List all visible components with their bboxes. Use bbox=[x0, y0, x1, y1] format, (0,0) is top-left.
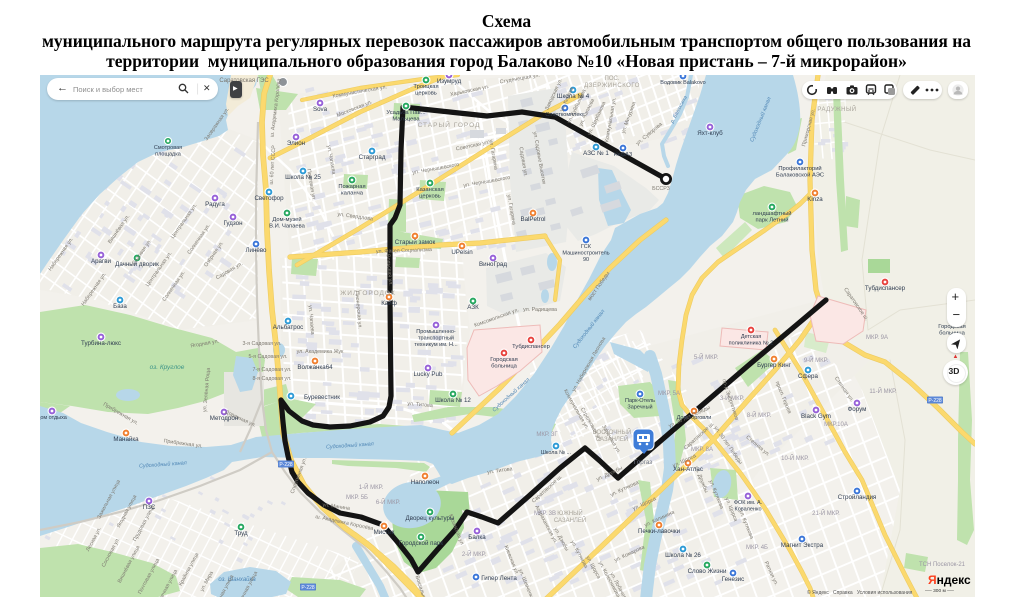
svg-text:ЖИЛГОРОДОК: ЖИЛГОРОДОК bbox=[340, 290, 396, 297]
svg-text:Парк-Отель: Парк-Отель bbox=[625, 398, 655, 404]
svg-text:ФОК им. А.: ФОК им. А. bbox=[734, 500, 763, 506]
svg-text:Хан-Атлас: Хан-Атлас bbox=[673, 466, 703, 473]
svg-text:РАДУЖНЫЙ: РАДУЖНЫЙ bbox=[817, 105, 856, 113]
svg-text:Дом торговли: Дом торговли bbox=[677, 415, 712, 421]
svg-text:Детская: Детская bbox=[741, 334, 761, 340]
svg-text:Усадьба Пав...: Усадьба Пав... bbox=[386, 110, 426, 116]
svg-text:Тубдиспансер: Тубдиспансер bbox=[512, 344, 550, 350]
svg-text:Заречный: Заречный bbox=[627, 404, 652, 411]
svg-text:АЗК: АЗК bbox=[467, 304, 479, 311]
svg-text:90: 90 bbox=[583, 257, 589, 263]
svg-text:Старый замок: Старый замок bbox=[395, 239, 436, 246]
svg-text:Горгаз: Горгаз bbox=[634, 459, 652, 466]
svg-text:Гипер Лента: Гипер Лента bbox=[481, 575, 517, 582]
svg-text:Манайка: Манайка bbox=[113, 436, 139, 443]
svg-text:МКР. 9А: МКР. 9А bbox=[866, 335, 888, 341]
svg-text:парк Летний: парк Летний bbox=[756, 217, 789, 224]
svg-text:Black Gym: Black Gym bbox=[801, 413, 831, 420]
svg-text:Городской парк: Городской парк bbox=[399, 540, 443, 547]
svg-text:оз. Круглое: оз. Круглое bbox=[150, 364, 185, 371]
svg-text:UPelsin: UPelsin bbox=[451, 249, 473, 256]
svg-text:Кайф: Кайф bbox=[381, 300, 397, 307]
svg-text:больница: больница bbox=[491, 364, 518, 370]
svg-text:Смотровая: Смотровая bbox=[154, 145, 182, 151]
svg-text:Дворец культуры: Дворец культуры bbox=[406, 515, 455, 522]
svg-text:Школа № 4: Школа № 4 bbox=[557, 93, 590, 100]
svg-text:Машиностроитель: Машиностроитель bbox=[562, 251, 609, 257]
svg-text:База: База bbox=[113, 303, 127, 310]
svg-text:Водовик Balakovo: Водовик Balakovo bbox=[660, 80, 705, 86]
svg-text:В.И. Чапаева: В.И. Чапаева bbox=[269, 224, 306, 230]
svg-text:5-я Садовая ул.: 5-я Садовая ул. bbox=[248, 354, 287, 360]
svg-text:8-я Садовая ул.: 8-я Садовая ул. bbox=[252, 376, 291, 382]
svg-text:Изумруд: Изумруд bbox=[437, 78, 462, 85]
svg-text:Промышленно-: Промышленно- bbox=[416, 329, 456, 335]
svg-text:5-Й МКР.: 5-Й МКР. bbox=[694, 353, 719, 361]
svg-text:Светофор: Светофор bbox=[254, 195, 284, 202]
svg-text:Школа № ...: Школа № ... bbox=[541, 450, 572, 456]
svg-text:Гудзон: Гудзон bbox=[223, 220, 242, 227]
svg-text:Бургер Кинг: Бургер Кинг bbox=[757, 362, 792, 369]
svg-text:6-Й МКР.: 6-Й МКР. bbox=[376, 498, 401, 506]
svg-text:ГСК: ГСК bbox=[581, 244, 592, 250]
svg-text:Волжанка64: Волжанка64 bbox=[297, 364, 333, 371]
svg-text:Школа № 12: Школа № 12 bbox=[435, 397, 471, 404]
svg-text:Саратовская ГЭС: Саратовская ГЭС bbox=[219, 78, 269, 84]
svg-text:Альбатрос: Альбатрос bbox=[273, 324, 303, 331]
svg-text:дом отдыха: дом отдыха bbox=[40, 415, 68, 421]
svg-text:Буревестник: Буревестник bbox=[304, 394, 340, 401]
svg-text:ПЗС: ПЗС bbox=[143, 504, 156, 511]
svg-text:МКР. 8А: МКР. 8А bbox=[691, 447, 713, 453]
svg-text:АЗС № 1: АЗС № 1 bbox=[583, 150, 609, 157]
svg-text:Балка: Балка bbox=[468, 534, 486, 541]
svg-text:2-Й МКР.: 2-Й МКР. bbox=[462, 550, 487, 558]
svg-text:BalPetrol: BalPetrol bbox=[520, 216, 545, 223]
svg-text:ДЗЕРЖИНСКОГО: ДЗЕРЖИНСКОГО bbox=[584, 83, 640, 89]
svg-text:Сфера: Сфера bbox=[798, 373, 818, 380]
svg-text:Магнит Экстра: Магнит Экстра bbox=[781, 542, 824, 549]
svg-text:Мальцева: Мальцева bbox=[392, 117, 420, 123]
svg-text:церковь: церковь bbox=[419, 194, 441, 200]
svg-text:Яхт-клуб: Яхт-клуб bbox=[697, 130, 723, 137]
svg-text:21-Й МКР.: 21-Й МКР. bbox=[812, 509, 840, 517]
svg-text:СТАРЫЙ ГОРОД: СТАРЫЙ ГОРОД bbox=[418, 120, 481, 129]
svg-text:Дом-музей: Дом-музей bbox=[272, 216, 301, 223]
svg-text:Старград: Старград bbox=[359, 154, 386, 161]
svg-text:ландшафтный: ландшафтный bbox=[753, 210, 792, 217]
svg-text:Sova: Sova bbox=[313, 106, 328, 113]
svg-text:Методрон: Методрон bbox=[210, 415, 238, 422]
svg-text:7-я Садовая ул.: 7-я Садовая ул. bbox=[252, 367, 291, 373]
svg-text:Балаковской АЭС: Балаковской АЭС bbox=[776, 172, 824, 179]
svg-text:Р-228: Р-228 bbox=[928, 398, 942, 404]
svg-text:11-Й МКР.: 11-Й МКР. bbox=[869, 387, 897, 395]
svg-text:Коваленко: Коваленко bbox=[734, 507, 761, 513]
svg-text:Генезис: Генезис bbox=[722, 576, 745, 583]
svg-text:МКР. 5А: МКР. 5А bbox=[658, 391, 680, 397]
svg-text:МКР. 3Г: МКР. 3Г bbox=[536, 432, 558, 438]
svg-text:Казанская: Казанская bbox=[416, 187, 444, 193]
svg-text:церковь: церковь bbox=[415, 91, 437, 97]
svg-text:Наполеон: Наполеон bbox=[411, 479, 439, 486]
svg-text:9-Й МКР.: 9-Й МКР. bbox=[804, 356, 829, 364]
svg-text:БССРЗ: БССРЗ bbox=[652, 186, 670, 192]
svg-text:Линёво: Линёво bbox=[245, 247, 267, 254]
svg-text:Пожарная: Пожарная bbox=[338, 184, 365, 190]
svg-text:Арагви: Арагви bbox=[91, 258, 112, 265]
svg-text:каланча: каланча bbox=[341, 191, 364, 197]
svg-text:1-Й МКР.: 1-Й МКР. bbox=[359, 483, 384, 491]
svg-text:Печки-лавочки: Печки-лавочки bbox=[638, 528, 681, 535]
svg-text:Слово Жизни: Слово Жизни bbox=[688, 568, 727, 575]
svg-text:Школа № 26: Школа № 26 bbox=[665, 552, 701, 559]
svg-text:Тубдиспансер: Тубдиспансер bbox=[865, 285, 906, 292]
svg-text:3-я Садовая ул.: 3-я Садовая ул. bbox=[242, 341, 281, 347]
svg-text:Lucky Pub: Lucky Pub bbox=[414, 371, 443, 378]
svg-text:ВиноГрад: ВиноГрад bbox=[479, 261, 507, 268]
svg-text:НефАЗ: НефАЗ bbox=[614, 152, 633, 158]
svg-text:МКР. 4Б: МКР. 4Б bbox=[746, 545, 768, 551]
svg-text:ПОС.: ПОС. bbox=[605, 76, 620, 82]
svg-text:ул. Академика Жук: ул. Академика Жук bbox=[297, 349, 344, 355]
svg-text:площадка: площадка bbox=[155, 152, 182, 158]
svg-text:Радуга: Радуга bbox=[205, 201, 225, 208]
svg-text:10-Й МКР.: 10-Й МКР. bbox=[781, 454, 809, 462]
svg-text:Городская: Городская bbox=[490, 357, 518, 363]
svg-text:Турбина-люкс: Турбина-люкс bbox=[81, 340, 121, 347]
svg-text:МКР. 5Б: МКР. 5Б bbox=[346, 495, 368, 501]
svg-text:Дачный дворик: Дачный дворик bbox=[115, 261, 159, 268]
svg-text:Стройландия: Стройландия bbox=[838, 494, 877, 501]
svg-text:техникум им. Н...: техникум им. Н... bbox=[414, 342, 458, 348]
svg-text:Форум: Форум bbox=[848, 406, 867, 413]
svg-text:Спорткомплекс: Спорткомплекс bbox=[545, 112, 584, 118]
svg-text:транспортный: транспортный bbox=[418, 335, 454, 342]
svg-text:Элион: Элион bbox=[287, 140, 305, 147]
svg-text:Школа № 25: Школа № 25 bbox=[285, 174, 321, 181]
svg-text:Троицкая: Троицкая bbox=[413, 84, 438, 90]
svg-text:Труд: Труд bbox=[234, 530, 248, 537]
svg-text:Мистик: Мистик bbox=[374, 529, 395, 536]
svg-text:САЗАНЛЕЙ: САЗАНЛЕЙ bbox=[554, 516, 586, 524]
svg-text:Р-228: Р-228 bbox=[279, 462, 293, 468]
svg-text:Профилакторий: Профилакторий bbox=[778, 165, 821, 172]
svg-text:Kinza: Kinza bbox=[807, 196, 823, 203]
svg-text:ТСН Поселок-21: ТСН Поселок-21 bbox=[919, 562, 966, 568]
svg-text:ул. Радищева: ул. Радищева bbox=[523, 307, 557, 313]
svg-text:8-Й МКР.: 8-Й МКР. bbox=[747, 411, 772, 419]
svg-text:ЮЖНЫЙ: ЮЖНЫЙ bbox=[557, 509, 582, 517]
svg-text:МКР.10А: МКР.10А bbox=[824, 422, 848, 428]
svg-text:поликлиника № 2: поликлиника № 2 bbox=[729, 341, 774, 347]
svg-text:Р-228: Р-228 bbox=[301, 585, 315, 591]
